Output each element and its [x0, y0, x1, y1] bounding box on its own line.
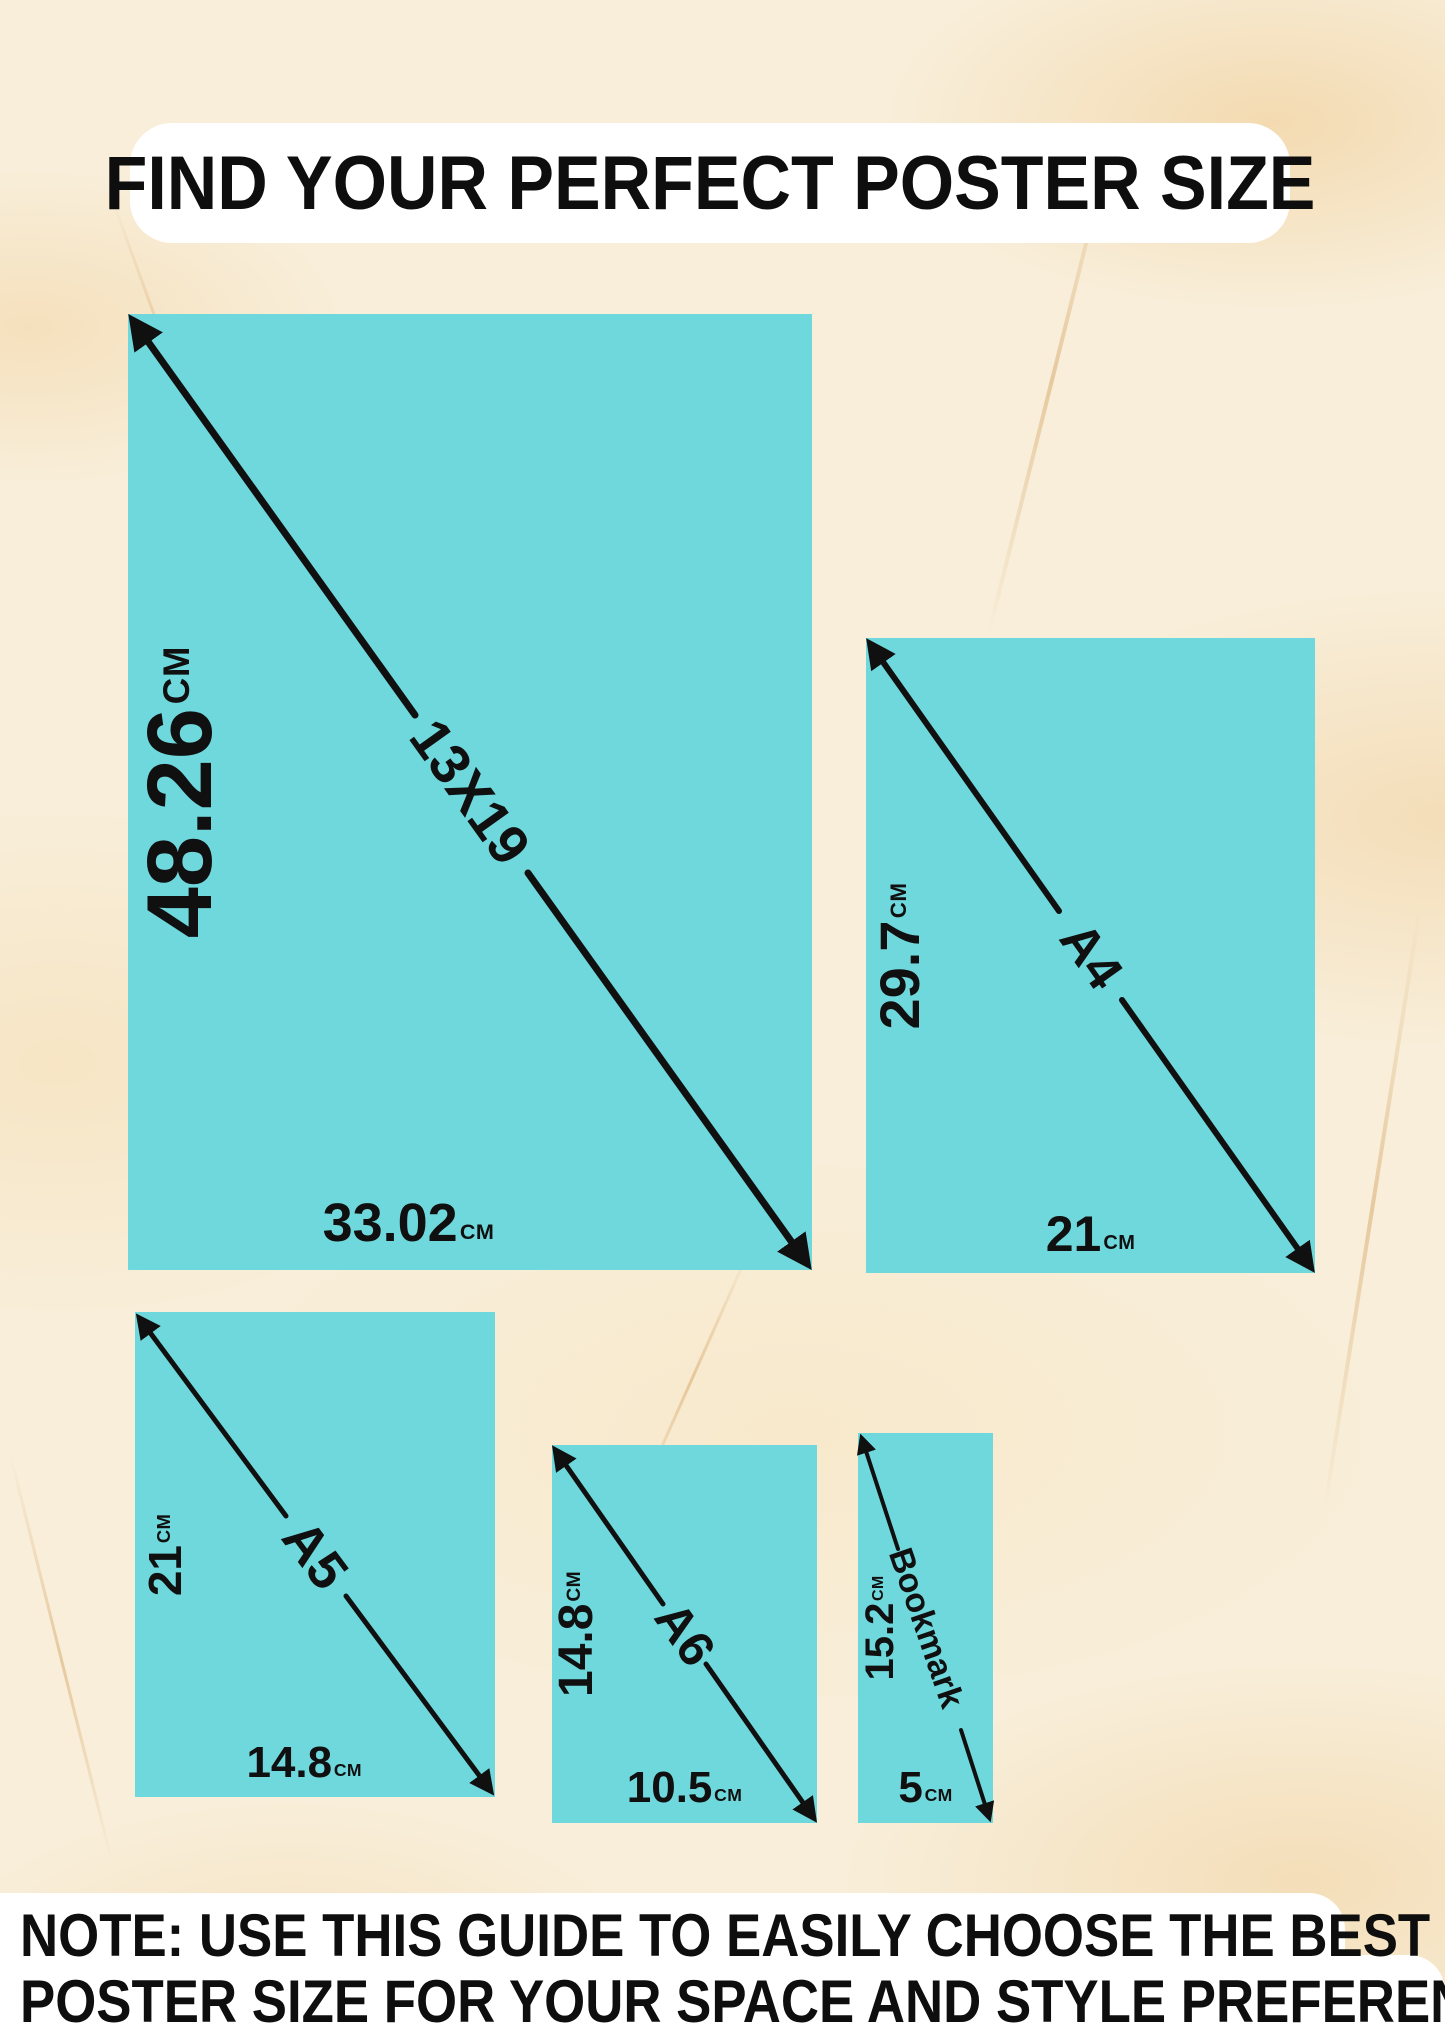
height-label: 21CM [142, 1513, 188, 1595]
width-unit: CM [460, 1219, 494, 1244]
height-label: 29.7CM [872, 882, 928, 1029]
height-unit: CM [153, 1513, 174, 1542]
height-value: 15.2 [858, 1603, 902, 1681]
width-value: 14.8 [246, 1738, 332, 1787]
width-value: 10.5 [627, 1763, 713, 1812]
height-label: 14.8CM [553, 1571, 601, 1697]
width-unit: CM [714, 1785, 742, 1805]
height-unit: CM [886, 882, 911, 918]
width-label: 5CM [898, 1766, 952, 1810]
width-label: 10.5CM [627, 1766, 742, 1810]
width-label: 14.8CM [246, 1741, 361, 1785]
poster-13x19: 48.26CM 13X19 33.02CM [128, 314, 812, 1270]
poster-a6: 14.8CM A6 10.5CM [552, 1445, 817, 1823]
width-unit: CM [925, 1785, 953, 1805]
height-unit: CM [564, 1571, 585, 1602]
poster-a5: 21CM A5 14.8CM [135, 1312, 495, 1797]
width-unit: CM [334, 1760, 362, 1780]
height-value: 48.26 [129, 708, 231, 938]
title-banner: FIND YOUR PERFECT POSTER SIZE [130, 123, 1290, 243]
note-line-2: POSTER SIZE FOR YOUR SPACE AND STYLE PRE… [20, 1969, 1445, 2035]
width-value: 33.02 [323, 1193, 458, 1253]
height-value: 21 [139, 1545, 191, 1596]
width-unit: CM [1103, 1232, 1135, 1254]
poster-bookmark: 15.2CM Bookmark 5CM [858, 1433, 993, 1823]
width-label: 33.02CM [323, 1196, 495, 1250]
height-value: 14.8 [550, 1604, 603, 1697]
page-title: FIND YOUR PERFECT POSTER SIZE [105, 140, 1316, 227]
height-label: 48.26CM [134, 646, 226, 939]
height-unit: CM [870, 1576, 887, 1602]
poster-a4: 29.7CM A4 21CM [866, 638, 1315, 1273]
note-line-1: NOTE: USE THIS GUIDE TO EASILY CHOOSE TH… [20, 1903, 1445, 1969]
width-value: 5 [898, 1763, 922, 1812]
height-unit: CM [156, 646, 197, 705]
width-label: 21CM [1046, 1209, 1136, 1259]
width-value: 21 [1046, 1206, 1102, 1262]
note-text: NOTE: USE THIS GUIDE TO EASILY CHOOSE TH… [20, 1903, 1445, 2035]
height-value: 29.7 [868, 920, 931, 1029]
